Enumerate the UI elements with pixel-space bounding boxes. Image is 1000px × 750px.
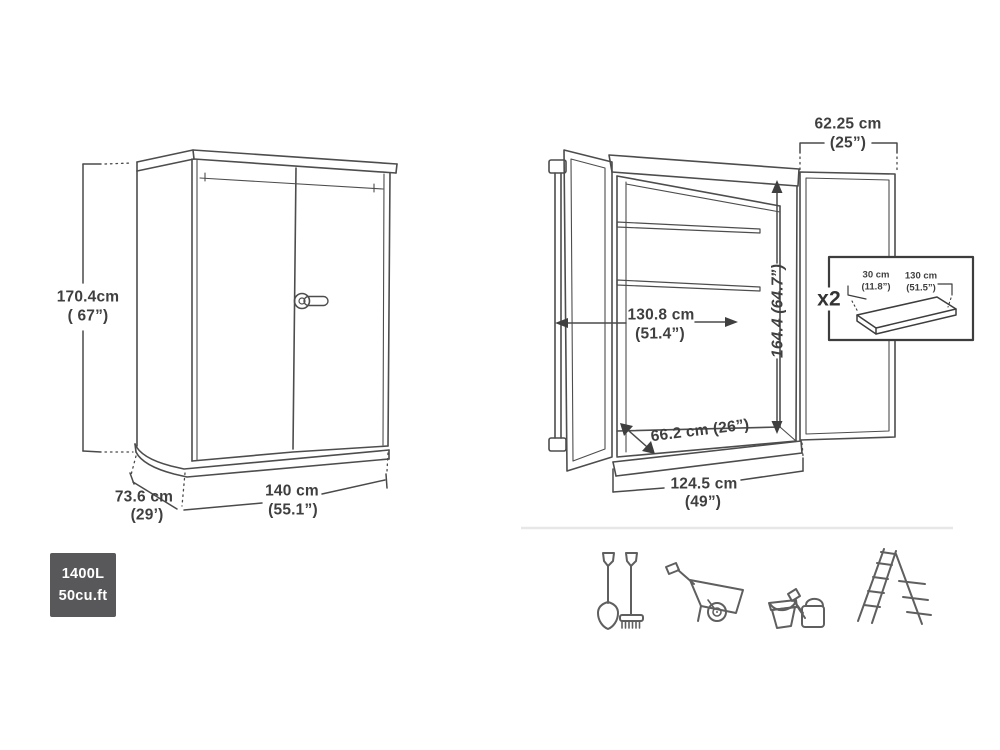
closed-cabinet-drawing xyxy=(135,150,397,477)
capacity-liters-label: 1400L xyxy=(62,563,105,585)
opening-width-cm-label: 124.5 cm xyxy=(670,476,737,492)
interior-width-cm-label: 130.8 cm xyxy=(627,307,694,323)
closed-depth-cm-label: 73.6 cm xyxy=(115,489,173,505)
interior-height-label: 164.4 (64.7”) xyxy=(770,264,786,358)
wheelbarrow-icon xyxy=(666,563,743,621)
opening-width-in-label: (49”) xyxy=(685,494,721,510)
door-width-in-label: (25”) xyxy=(830,135,866,151)
capacity-badge: 1400L 50cu.ft xyxy=(50,553,116,617)
shovel-and-rake-icon xyxy=(598,553,643,629)
shelf-width-cm-label: 130 cm xyxy=(905,271,937,281)
shelf-width-in-label: (51.5”) xyxy=(906,283,936,293)
dimension-diagram-page: 170.4cm ( 67”) 73.6 cm (29’) 140 cm (55.… xyxy=(0,0,1000,750)
closed-height-in-label: ( 67”) xyxy=(68,308,109,324)
closed-height-cm-label: 170.4cm xyxy=(57,289,120,305)
shelf-depth-cm-label: 30 cm xyxy=(863,270,890,280)
shelf-quantity-label: x2 xyxy=(814,288,844,311)
capacity-cubic-feet-label: 50cu.ft xyxy=(59,585,108,607)
door-width-cm-label: 62.25 cm xyxy=(814,116,881,132)
shelf-depth-in-label: (11.8”) xyxy=(861,282,890,292)
interior-width-in-label: (51.4”) xyxy=(635,326,685,342)
closed-width-in-label: (55.1”) xyxy=(268,502,318,518)
ladder-icon xyxy=(858,549,931,624)
closed-cabinet-dimension-lines xyxy=(83,163,388,510)
shelf-inset-box xyxy=(829,257,973,340)
cabinet-line-art xyxy=(0,0,1000,750)
storage-icons-row xyxy=(598,549,931,629)
closed-width-cm-label: 140 cm xyxy=(265,483,319,499)
bucket-and-watering-can-icon xyxy=(769,589,824,628)
closed-depth-in-label: (29’) xyxy=(131,507,164,523)
